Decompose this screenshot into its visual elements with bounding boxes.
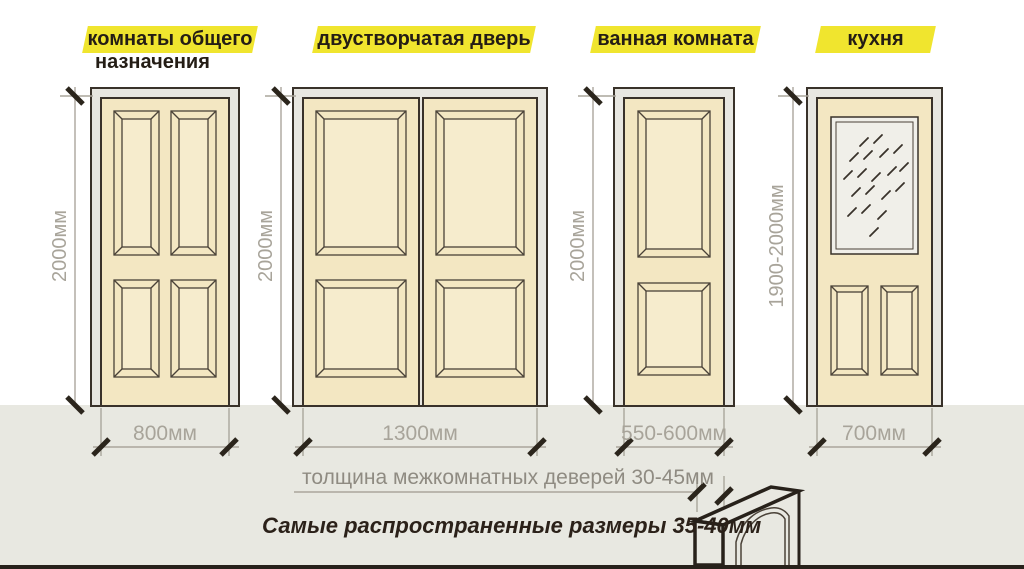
door-panel (316, 111, 406, 255)
door-panel (114, 111, 159, 255)
door-panel (638, 283, 710, 375)
door-label-general-rooms-line2: назначения (95, 51, 210, 74)
door-panel (831, 286, 868, 375)
common-size-note: Самые распространенные размеры 35-40мм (262, 513, 761, 539)
height-dimension-double-leaf: 2000мм (253, 191, 279, 301)
door-panel (316, 280, 406, 377)
door-panel (171, 280, 216, 377)
door-bathroom-drawing (613, 87, 735, 407)
door-kitchen-drawing (806, 87, 943, 407)
door-panel (114, 280, 159, 377)
width-dimension-double-leaf: 1300мм (350, 422, 490, 446)
door-label-bathroom: ванная комната (593, 26, 758, 53)
door-general-rooms-drawing (90, 87, 240, 407)
ground-line (0, 565, 1024, 569)
door-panel (436, 111, 524, 255)
door-label-kitchen: кухня (818, 26, 933, 53)
thickness-note: толщина межкомнатных деверей 30-45мм (302, 466, 714, 490)
door-panel (171, 111, 216, 255)
height-dimension-kitchen: 1900-2000мм (764, 171, 790, 321)
door-double-leaf-drawing (292, 87, 548, 407)
height-dimension-general-rooms: 2000мм (47, 191, 73, 301)
door-label-double-leaf: двустворчатая дверь (315, 26, 533, 53)
width-dimension-general-rooms: 800мм (105, 422, 225, 446)
door-panel (436, 280, 524, 377)
width-dimension-kitchen: 700мм (814, 422, 934, 446)
door-label-general-rooms: комнаты общего (85, 26, 255, 53)
width-dimension-bathroom: 550-600мм (599, 422, 749, 446)
height-dimension-bathroom: 2000мм (565, 191, 591, 301)
door-panel (881, 286, 918, 375)
door-sizes-infographic: комнаты общего назначения двустворчатая … (0, 0, 1024, 569)
door-panel (638, 111, 710, 257)
